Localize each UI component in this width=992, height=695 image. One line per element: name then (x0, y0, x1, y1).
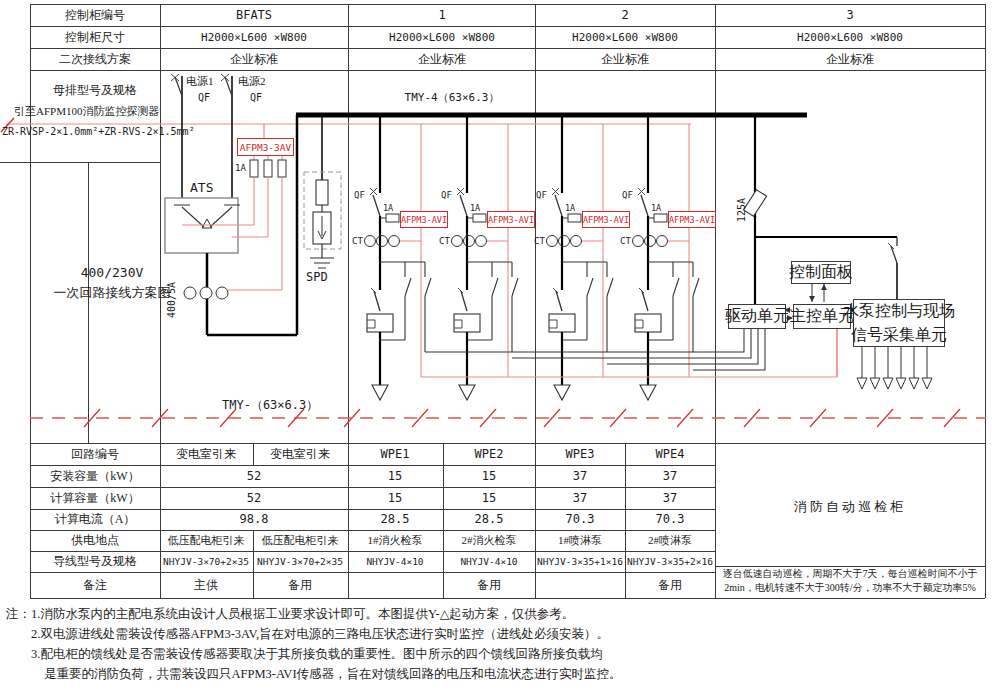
inspection-fuse-label: 125A (736, 198, 747, 222)
table-cell: 37 (573, 469, 587, 483)
row-label-supply-point: 供电地点 (71, 532, 119, 549)
spd-label: SPD (306, 270, 328, 284)
feeder-ct-label: CT (439, 236, 450, 246)
signal-output-arrows (857, 345, 932, 389)
pump-signal-unit-box: 水泵控制与现场 信号采集单元 (853, 299, 945, 347)
cabinet-id: 3 (846, 8, 853, 22)
incomer-ct (216, 287, 228, 299)
table-cell: WPE1 (381, 447, 410, 461)
wiring-scheme: 企业标准 (601, 51, 649, 68)
note-line: 2.双电源进线处需装设传感器AFPM3-3AV,旨在对电源的三路电压状态进行实时… (31, 626, 609, 643)
diagram-row-label: 一次回路接线方案图 (54, 284, 171, 302)
table-cell: 15 (388, 491, 402, 505)
cabinet-id: 1 (438, 8, 445, 22)
row-label-cabinet-size: 控制柜尺寸 (65, 29, 125, 46)
inspection-section (743, 117, 932, 389)
wiring-scheme: 企业标准 (418, 51, 466, 68)
inspection-cabinet-title: 消防自动巡检柜 (794, 498, 906, 516)
table-cell: 28.5 (381, 512, 410, 526)
table-cell: 备用 (658, 577, 682, 594)
feeder-sensor-box: AFPM3-AVI (400, 211, 448, 228)
ats-label: ATS (190, 180, 213, 195)
table-cell: 70.3 (566, 512, 595, 526)
table-cell: 98.8 (240, 512, 269, 526)
drive-unit-box: 驱动单元 (728, 304, 786, 329)
pump-unit-line2: 信号采集单元 (851, 323, 947, 347)
spd-branch (304, 116, 341, 268)
note-line: 3.配电柜的馈线处是否需装设传感器要取决于其所接负载的重要性。图中所示的四个馈线… (31, 646, 603, 663)
incomer-ct-ratio: 400/5A (166, 282, 177, 318)
incomer-ct (184, 287, 196, 299)
table-cell: 70.3 (656, 512, 685, 526)
table-cell: WPE2 (475, 447, 504, 461)
table-cell: 52 (247, 469, 261, 483)
table-cell: 变电室引来 (176, 446, 236, 463)
table-cell: NHYJV-3×35+1×16 (537, 556, 623, 567)
table-cell: NHYJV-3×70+2×35 (257, 556, 343, 567)
feeder-wpe1 (365, 117, 432, 400)
sensor-fuse (264, 160, 272, 177)
cabinet-id: BFATS (236, 8, 272, 22)
feeder-ct-label: CT (534, 236, 545, 246)
row-label-installed-kw: 安装容量（kW） (50, 468, 139, 485)
cabinet-id: 2 (621, 8, 628, 22)
cabinet-size: H2000×L600 ×W800 (797, 31, 903, 44)
row-label-remark: 备注 (83, 577, 107, 594)
pump-unit-line1: 水泵控制与现场 (843, 299, 955, 323)
control-panel-box: 控制面板 (791, 261, 851, 284)
feeder-fuse-label: 1A (565, 203, 575, 213)
feeder-breaker-label: QF (536, 190, 547, 200)
feeder-breaker-label: QF (622, 190, 633, 200)
table-cell: 15 (388, 469, 402, 483)
table-cell: 1#消火检泵 (368, 533, 423, 548)
row-label-busbar: 母排型号及规格 (53, 82, 137, 99)
feeder-sensor-box: AFPM3-AVI (668, 211, 716, 228)
table-cell: WPE4 (656, 447, 685, 461)
row-label-wiring-scheme: 二次接线方案 (59, 51, 131, 68)
table-cell: 主供 (194, 577, 218, 594)
spd-fuse (316, 180, 328, 205)
feeder-wpe2 (452, 117, 519, 400)
afpm-leader-label: 引至AFPM100消防监控探测器 (14, 104, 159, 119)
control-collect-lines (425, 327, 765, 370)
source2-breaker-label: QF (250, 92, 262, 103)
feeder-fuse-label: 1A (651, 203, 661, 213)
table-cell: 52 (247, 491, 261, 505)
source1-label: 电源1 (186, 74, 214, 89)
cabinet-size: H2000×L600 ×W800 (201, 31, 307, 44)
table-cell: NHYJV-3×35+2×16 (627, 556, 713, 567)
incomer-section (165, 74, 297, 335)
feeder-fuse-label: 1A (383, 203, 393, 213)
table-cell: 2#消火检泵 (462, 533, 517, 548)
inspection-note-line2: 2min，电机转速不大于300转/分，功率不大于额定功率5% (724, 581, 976, 595)
feeder-sensor-box: AFPM3-AVI (487, 211, 535, 228)
bottom-bus-hatch (30, 409, 986, 427)
table-cell: NHYJV-4×10 (366, 556, 423, 567)
table-cell: 2#喷淋泵 (648, 533, 692, 548)
feeder-ct-label: CT (352, 236, 363, 246)
table-cell: 37 (573, 491, 587, 505)
feeder-breaker-label: QF (441, 190, 452, 200)
row-label-calculated-a: 计算电流（A） (55, 511, 136, 528)
row-label-calculated-kw: 计算容量（kW） (50, 490, 139, 507)
note-line: 1.消防水泵内的主配电系统由设计人员根据工业要求设计即可。本图提供Y-△起动方案… (31, 606, 574, 623)
row-label-circuit-id: 回路编号 (71, 446, 119, 463)
table-cell: 低压配电柜引来 (262, 533, 339, 548)
cabinet-size: H2000×L600 ×W800 (572, 31, 678, 44)
bottom-bus-spec: TMY-（63×6.3） (222, 397, 318, 414)
row-label-cabinet-id: 控制柜编号 (65, 7, 125, 24)
row-label-wire-spec: 导线型号及规格 (53, 553, 137, 570)
sensor-fuse (278, 160, 286, 177)
table-cell: 备用 (477, 577, 501, 594)
feeder-sensor-box: AFPM3-AVI (582, 211, 630, 228)
table-cell: 备用 (288, 577, 312, 594)
single-line-diagram-sheet: 控制柜编号 BFATS 1 2 3 控制柜尺寸 H2000×L600 ×W800… (0, 0, 992, 695)
sensor-fuse-label: 1A (235, 163, 246, 173)
source2-breaker-blade (225, 77, 232, 96)
busbar-spec: TMY-4（63×6.3） (405, 90, 500, 105)
cable-spec-label: ZR-RVSP-2×1.0mm²+ZR-RVS-2×1.5mm² (2, 126, 195, 137)
table-cell: NHYJV-4×10 (460, 556, 517, 567)
table-cell: 15 (482, 491, 496, 505)
table-cell: 37 (663, 469, 677, 483)
notes-prefix: 注： (6, 606, 31, 623)
table-cell: 1#喷淋泵 (558, 533, 602, 548)
sensor-fuse (250, 160, 258, 177)
feeder-fuse-label: 1A (470, 203, 480, 213)
incomer-ct (200, 287, 212, 299)
table-cell: 变电室引来 (270, 446, 330, 463)
wiring-scheme: 企业标准 (826, 51, 874, 68)
table-cell: WPE3 (566, 447, 595, 461)
table-cell: NHYJV-3×70+2×35 (163, 556, 249, 567)
inspection-note-line1: 逐台低速自动巡检，周期不大于7天，每台巡检时间不小于 (723, 567, 978, 581)
feeder-ct-label: CT (620, 236, 631, 246)
note-line: 是重要的消防负荷，共需装设四只AFPM3-AVI传感器，旨在对馈线回路的电压和电… (44, 666, 622, 683)
incomer-sensor-box: AFPM3-3AV (237, 138, 294, 156)
voltage-label: 400/230V (81, 265, 144, 280)
source1-breaker-blade (175, 77, 182, 96)
cabinet-size: H2000×L600 ×W800 (389, 31, 495, 44)
table-cell: 28.5 (475, 512, 504, 526)
table-cell: 15 (482, 469, 496, 483)
table-cell: 37 (663, 491, 677, 505)
wiring-scheme: 企业标准 (230, 51, 278, 68)
table-cell: 低压配电柜引来 (168, 533, 245, 548)
ground-symbol (310, 258, 334, 268)
source2-label: 电源2 (238, 74, 266, 89)
feeder-breaker-label: QF (354, 190, 365, 200)
source1-breaker-label: QF (198, 92, 210, 103)
